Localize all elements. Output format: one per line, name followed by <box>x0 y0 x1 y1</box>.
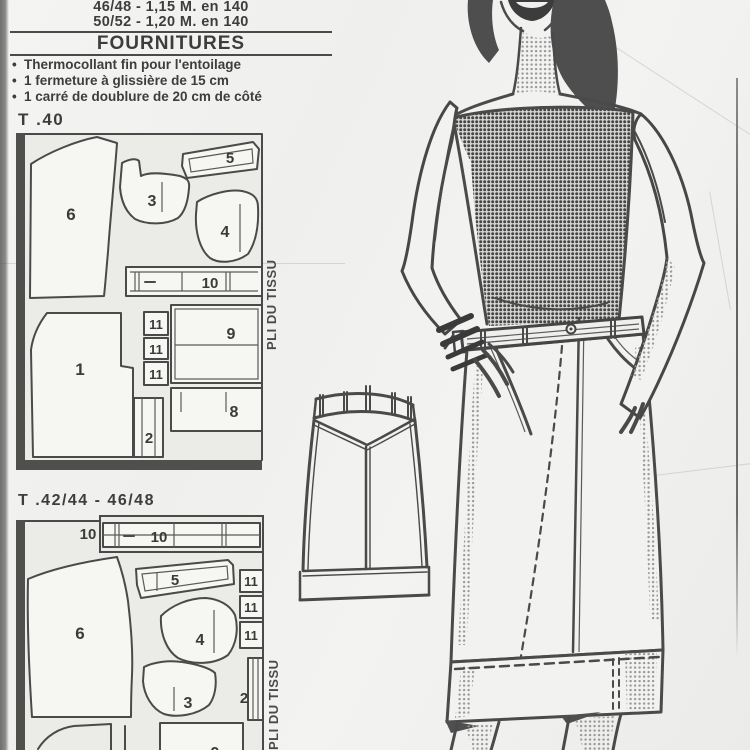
bullet-icon: • <box>12 89 24 105</box>
piece-label: 1 <box>75 360 84 379</box>
layout1-bottom-border <box>16 460 262 470</box>
pattern-piece-6: 6 <box>30 137 117 298</box>
model-top-bodice <box>447 94 641 326</box>
piece-label: 4 <box>221 224 230 241</box>
pattern-piece-3: 3 <box>143 661 216 715</box>
layout2-left-border <box>16 520 25 750</box>
piece-label: 2 <box>145 430 153 447</box>
piece-label: 9 <box>227 326 236 343</box>
fold-label-1: PLI DU TISSU <box>264 252 280 350</box>
hem-band <box>447 650 663 722</box>
piece-label: 3 <box>148 193 157 210</box>
pattern-piece-1: 1 <box>31 313 133 457</box>
piece-label: 6 <box>75 624 84 643</box>
piece-label: 3 <box>184 695 193 712</box>
bullet-icon: • <box>12 57 24 73</box>
list-item: •Thermocollant fin pour l'entoilage <box>12 57 342 73</box>
cutting-layout-1-diagram: 6 3 5 4 10 1 <box>14 132 266 472</box>
pattern-instruction-sheet: 46/48 - 1,15 M. en 140 50/52 - 1,20 M. e… <box>0 0 750 750</box>
piece-label: 2 <box>240 690 248 707</box>
piece-label: 11 <box>149 367 163 382</box>
pattern-piece-9: 9 <box>171 305 262 383</box>
pattern-piece-9-partial: 9 <box>160 723 243 750</box>
yardage-lines: 46/48 - 1,15 M. en 140 50/52 - 1,20 M. e… <box>10 0 332 30</box>
fashion-illustration <box>395 0 750 750</box>
piece-label: 11 <box>149 317 163 332</box>
pattern-piece-10: 10 <box>126 267 262 296</box>
layout1-left-border <box>16 133 25 469</box>
piece-label: 11 <box>149 342 163 357</box>
rule-under-title <box>10 54 332 56</box>
piece-label: 10 <box>202 275 219 292</box>
piece-label: 8 <box>230 404 239 421</box>
pattern-piece-4: 4 <box>196 191 258 262</box>
layout1-title: T .40 <box>18 110 64 130</box>
list-item: •1 carré de doublure de 20 cm de côté <box>12 89 342 105</box>
scan-edge-left <box>0 0 9 750</box>
yardage-line-1: 46/48 - 1,15 M. en 140 <box>10 0 332 15</box>
piece-label: 4 <box>196 632 205 649</box>
fold-label-2: PLI DU TISSU <box>266 608 282 750</box>
pattern-pieces-11: 11 11 11 <box>144 312 168 385</box>
fournitures-list: •Thermocollant fin pour l'entoilage •1 f… <box>12 57 342 105</box>
bullet-icon: • <box>12 73 24 89</box>
pattern-piece-8: 8 <box>171 388 262 431</box>
pattern-piece-6: 6 <box>28 557 133 717</box>
pattern-piece-10: 10 10 <box>80 523 260 547</box>
pattern-piece-2: 2 <box>134 398 163 457</box>
piece-label: 11 <box>244 628 258 643</box>
yardage-line-2: 50/52 - 1,20 M. en 140 <box>10 15 332 30</box>
hair-left <box>468 0 499 63</box>
piece-label: 10 <box>151 529 168 546</box>
pattern-piece-4: 4 <box>161 598 237 663</box>
cutting-layout-2-diagram: 10 10 6 5 4 11 11 11 3 <box>14 515 266 750</box>
layout2-title: T .42/44 - 46/48 <box>18 492 155 510</box>
list-item: •1 fermeture à glissière de 15 cm <box>12 73 342 89</box>
pattern-pieces-11: 11 11 11 <box>240 570 263 648</box>
piece-label: 11 <box>244 574 258 589</box>
piece-label: 6 <box>66 205 75 224</box>
model-right-arm <box>621 114 704 432</box>
piece-label: 9 <box>211 745 220 750</box>
piece-label: 5 <box>171 572 179 589</box>
piece-label: 11 <box>244 600 258 615</box>
fournitures-title: FOURNITURES <box>10 33 332 55</box>
piece-label: 5 <box>226 150 234 167</box>
piece-label: 10 <box>80 526 97 543</box>
